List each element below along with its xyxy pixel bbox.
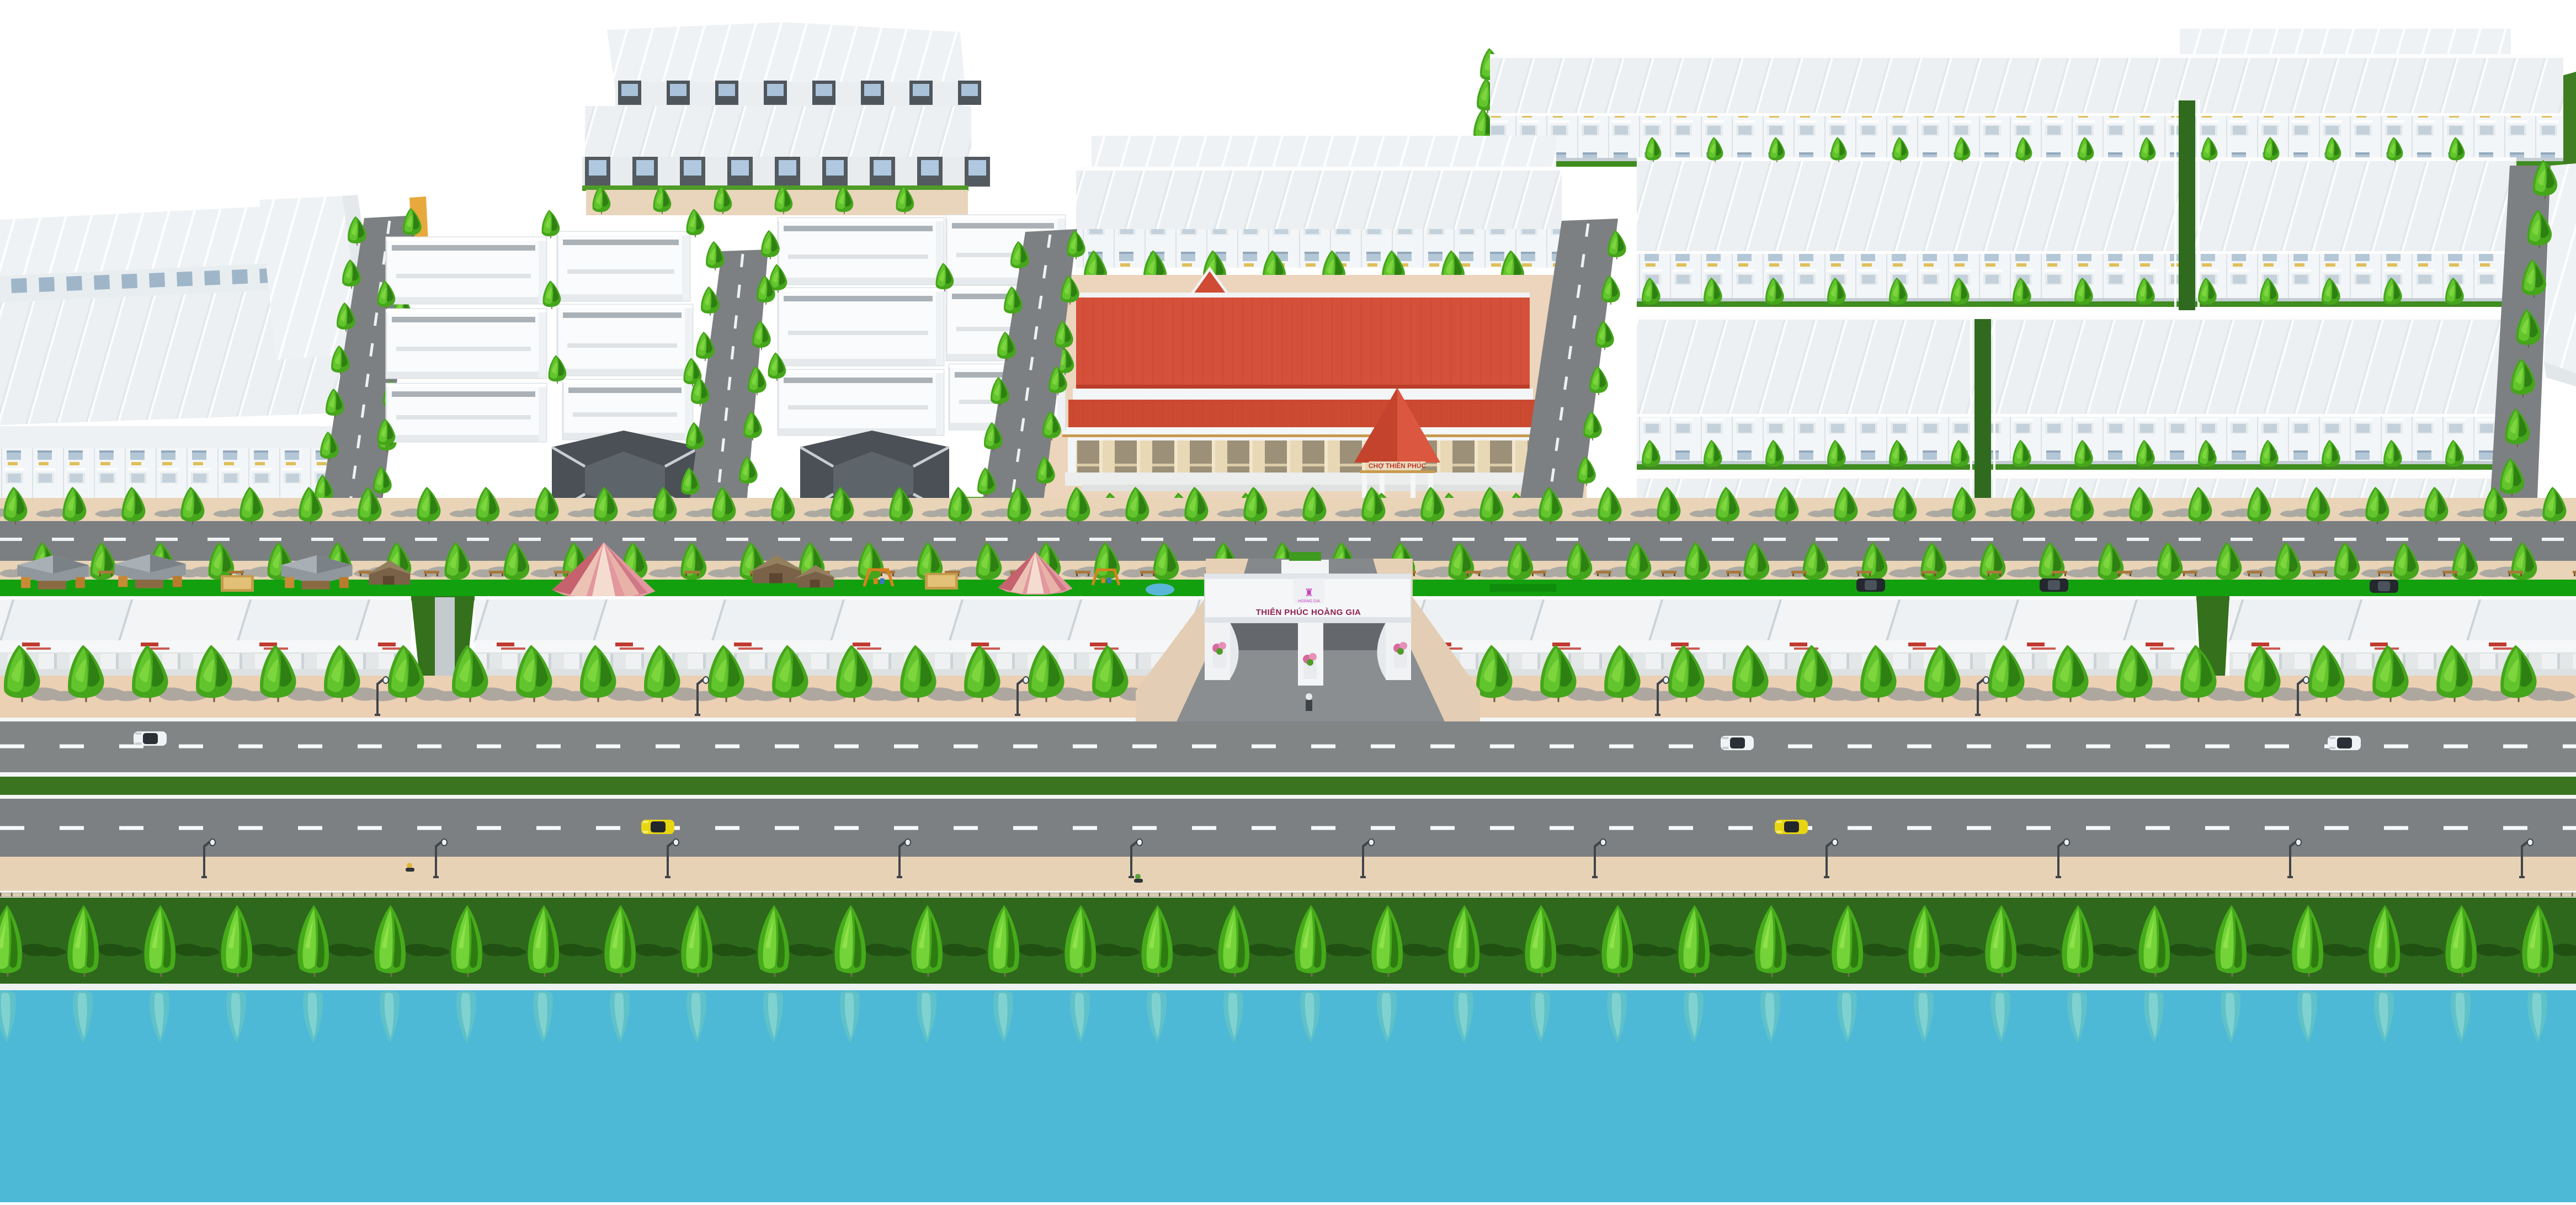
svg-text:HOÀNG GIA: HOÀNG GIA [1298,598,1320,603]
svg-text:CHỢ THIÊN PHÚC: CHỢ THIÊN PHÚC [1369,461,1427,470]
svg-text:THIÊN PHÚC HOÀNG GIA: THIÊN PHÚC HOÀNG GIA [1256,607,1361,617]
svg-text:♜: ♜ [1304,587,1313,599]
